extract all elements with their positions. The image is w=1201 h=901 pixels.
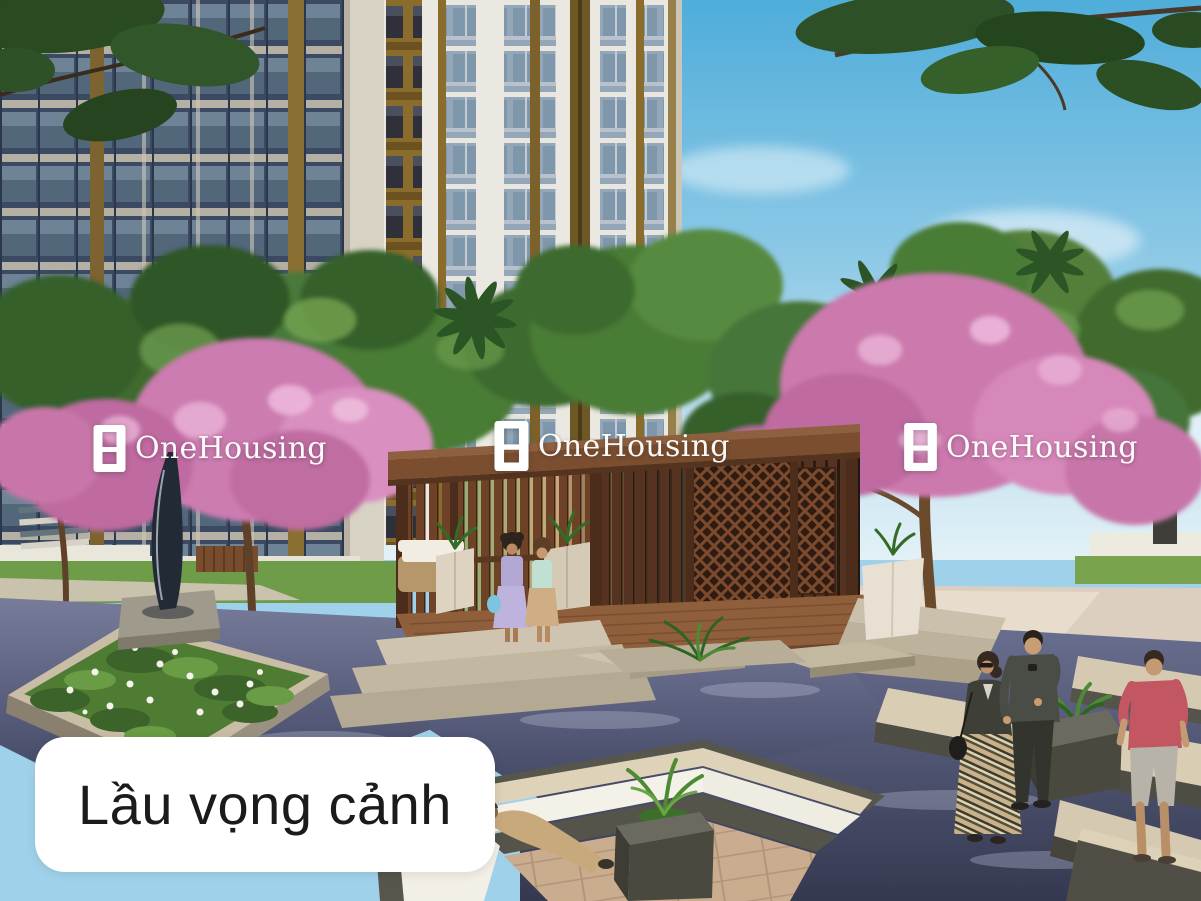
caption-label: Lầu vọng cảnh <box>35 737 495 872</box>
render-image: OneHousing OneHousing OneHousing Lầu vọn… <box>0 0 1201 901</box>
caption-text: Lầu vọng cảnh <box>78 772 452 837</box>
